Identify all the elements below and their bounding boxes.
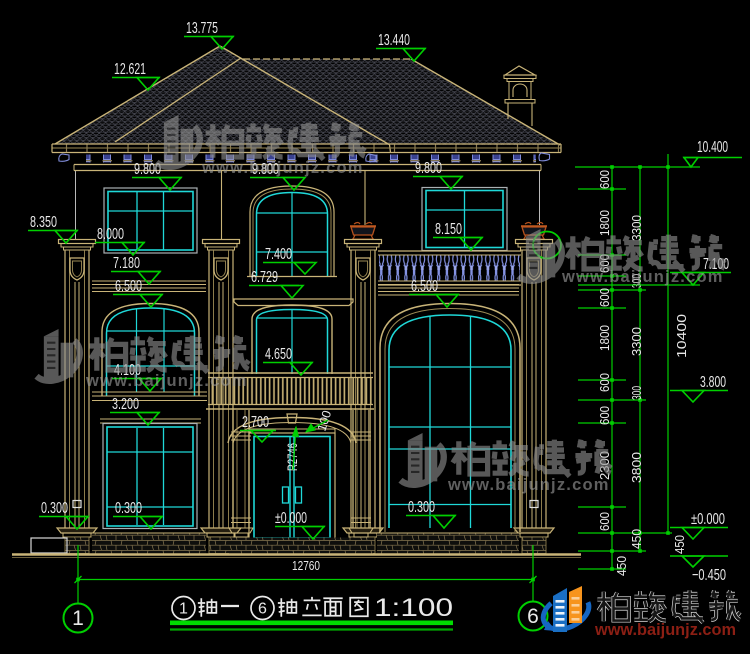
svg-text:6.500: 6.500 <box>411 278 438 295</box>
svg-text:600: 600 <box>598 170 612 189</box>
svg-text:0.300: 0.300 <box>41 500 68 517</box>
svg-text:0.300: 0.300 <box>408 499 435 516</box>
svg-text:−0.450: −0.450 <box>692 567 726 584</box>
svg-text:600: 600 <box>598 288 612 307</box>
svg-text:www.baijunjz.com: www.baijunjz.com <box>85 372 248 390</box>
svg-text:6.500: 6.500 <box>115 278 142 295</box>
svg-text:3.200: 3.200 <box>112 396 139 413</box>
svg-text:8.000: 8.000 <box>97 226 124 243</box>
svg-text:4.650: 4.650 <box>265 346 292 363</box>
svg-text:10400: 10400 <box>675 314 689 358</box>
svg-text:8.350: 8.350 <box>30 214 57 231</box>
svg-text:600: 600 <box>598 406 612 425</box>
svg-text:3300: 3300 <box>630 327 644 356</box>
svg-text:3.800: 3.800 <box>700 374 726 391</box>
svg-text:www.baijunjz.com: www.baijunjz.com <box>201 159 364 177</box>
svg-text:450: 450 <box>615 556 629 576</box>
svg-text:www.baijunjz.com: www.baijunjz.com <box>594 621 736 639</box>
svg-text:600: 600 <box>598 373 612 392</box>
svg-text:±0.000: ±0.000 <box>275 510 307 527</box>
svg-text:6.729: 6.729 <box>251 269 278 286</box>
svg-text:1800: 1800 <box>598 325 612 351</box>
svg-text:1:100: 1:100 <box>374 594 453 622</box>
svg-text:1800: 1800 <box>598 210 612 236</box>
svg-text:9.800: 9.800 <box>415 160 442 177</box>
svg-text:8.150: 8.150 <box>435 221 462 238</box>
svg-text:13.775: 13.775 <box>186 20 218 37</box>
svg-text:3800: 3800 <box>630 452 644 483</box>
svg-text:2.700: 2.700 <box>242 414 269 431</box>
svg-text:±0.000: ±0.000 <box>691 511 725 528</box>
svg-text:0.300: 0.300 <box>115 500 142 517</box>
svg-text:6: 6 <box>527 605 539 628</box>
svg-text:6: 6 <box>258 601 267 618</box>
svg-text:300: 300 <box>630 386 644 400</box>
svg-text:450: 450 <box>673 535 687 554</box>
svg-text:www.baijunjz.com: www.baijunjz.com <box>561 268 724 286</box>
svg-text:7.400: 7.400 <box>265 246 292 263</box>
svg-text:12760: 12760 <box>292 558 320 573</box>
svg-text:7.180: 7.180 <box>113 255 140 272</box>
svg-text:1: 1 <box>179 601 188 618</box>
svg-text:13.440: 13.440 <box>378 32 410 49</box>
svg-text:450: 450 <box>630 529 644 549</box>
svg-text:10.400: 10.400 <box>697 139 728 156</box>
svg-text:12.621: 12.621 <box>114 61 146 78</box>
svg-text:R2746: R2746 <box>284 443 300 471</box>
svg-text:3300: 3300 <box>630 215 644 241</box>
svg-text:600: 600 <box>598 512 612 531</box>
svg-text:www.baijunjz.com: www.baijunjz.com <box>447 476 610 494</box>
svg-text:1: 1 <box>72 607 84 630</box>
